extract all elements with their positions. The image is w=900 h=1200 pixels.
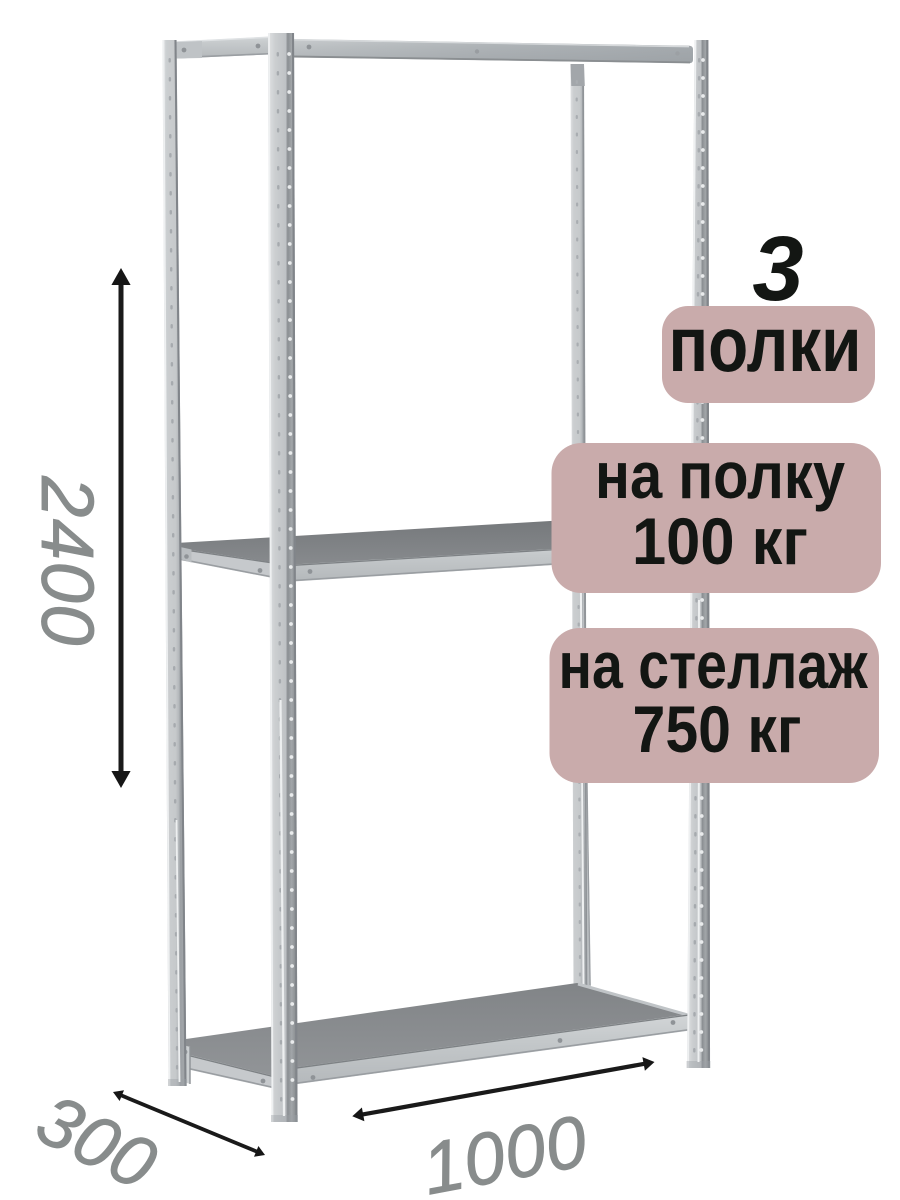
svg-text:на полку: на полку (595, 438, 845, 512)
svg-text:на стеллаж: на стеллаж (559, 628, 869, 702)
svg-text:2400: 2400 (26, 475, 109, 647)
svg-text:300: 300 (24, 1079, 169, 1200)
svg-text:полки: полки (669, 300, 862, 388)
svg-text:1000: 1000 (416, 1101, 594, 1200)
svg-text:100 кг: 100 кг (632, 504, 808, 578)
svg-text:750 кг: 750 кг (633, 692, 802, 766)
